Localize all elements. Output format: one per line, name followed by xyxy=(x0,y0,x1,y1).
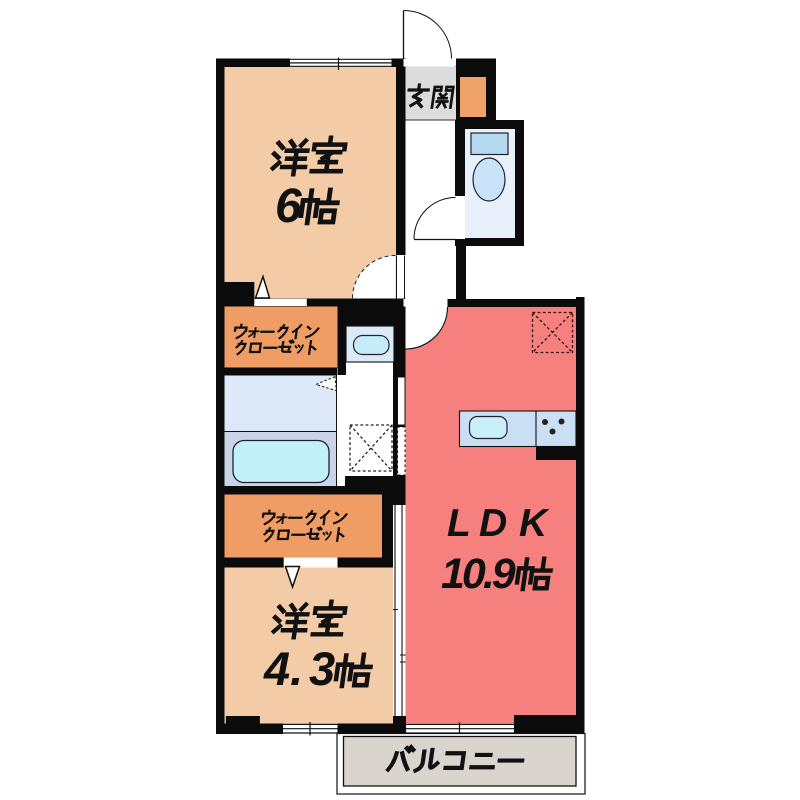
svg-text:K: K xyxy=(519,502,550,545)
svg-text:3: 3 xyxy=(309,642,335,695)
svg-text:L: L xyxy=(447,502,471,545)
svg-text:6: 6 xyxy=(275,180,302,233)
svg-text:4.: 4. xyxy=(263,642,303,695)
svg-text:10.9: 10.9 xyxy=(441,550,516,598)
svg-text:D: D xyxy=(479,502,507,545)
